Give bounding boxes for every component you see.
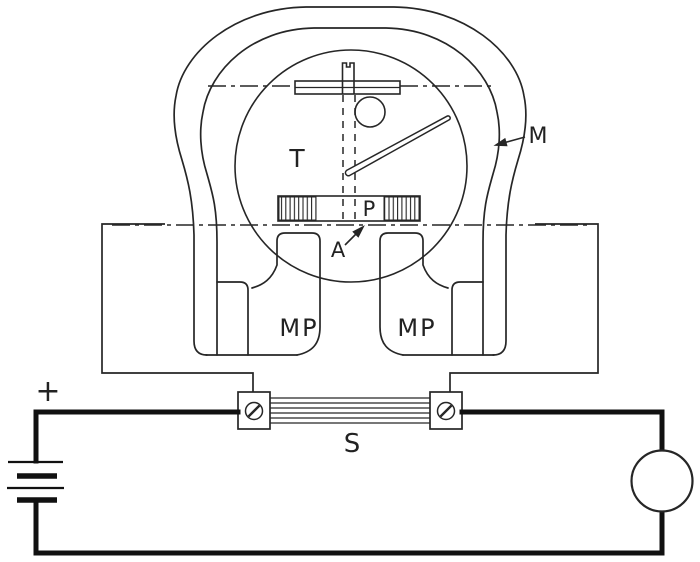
label-m: M [529,124,548,149]
wire-top-left [36,412,238,461]
wire-bottom [36,500,662,553]
control-drum-circle [355,97,385,127]
instrument-diagram: + T P A M MP MP S [0,0,700,562]
frame-outline [102,224,598,392]
diagram-page: + T P A M MP MP S [0,0,700,562]
label-a: A [331,238,346,262]
arrow-a-line [345,233,357,245]
armature-hatch-left [279,197,316,220]
label-s: S [344,429,361,459]
label-mp-left: MP [279,314,318,342]
shunt-assembly [238,392,462,429]
base-frame [102,224,598,392]
battery [7,462,64,500]
torsion-head [295,63,400,94]
armature-bar [278,196,420,221]
load-circle [632,451,693,512]
arrow-m-head [496,139,507,145]
armature-hatch-right [384,197,419,220]
pole-pieces [206,233,494,355]
label-mp-right: MP [397,314,436,342]
wire-top-right [462,412,662,451]
right-pole-spacer [452,282,483,355]
magnet-case [174,7,526,355]
label-battery-plus: + [35,374,60,409]
shunt-strips [270,398,430,423]
arrow-m-line [505,137,525,143]
label-t: T [288,144,305,173]
magnet-case-inner-wall [201,28,500,355]
label-p: P [363,197,376,221]
left-pole-spacer [217,282,248,355]
magnet-case-outer-wall [174,7,526,355]
labels: + T P A M MP MP S [35,124,547,459]
